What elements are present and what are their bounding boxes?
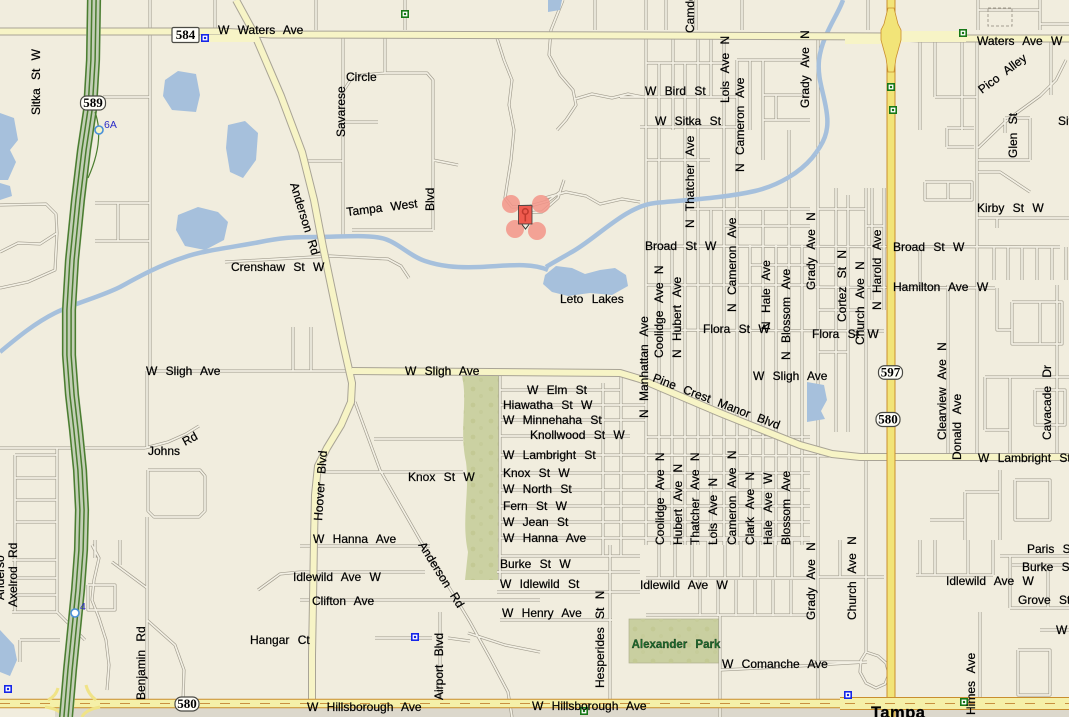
svg-text:Crenshaw St W: Crenshaw St W <box>231 260 325 274</box>
svg-text:N Cameron Ave: N Cameron Ave <box>725 217 739 312</box>
svg-text:Grady Ave N: Grady Ave N <box>798 30 812 108</box>
svg-text:Leto Lakes: Leto Lakes <box>560 292 624 306</box>
svg-text:Cameron Ave N: Cameron Ave N <box>725 451 739 546</box>
svg-text:597: 597 <box>881 365 901 380</box>
svg-text:W Lambright St: W Lambright St <box>978 451 1069 465</box>
svg-text:W Waters Ave: W Waters Ave <box>218 23 304 37</box>
svg-text:Lois Ave N: Lois Ave N <box>706 478 720 545</box>
svg-text:W Minnehaha St: W Minnehaha St <box>503 413 602 427</box>
svg-text:Idlewild Ave W: Idlewild Ave W <box>640 578 728 592</box>
svg-text:W Idlewild St: W Idlewild St <box>500 577 580 591</box>
svg-text:Anderso: Anderso <box>0 555 7 600</box>
svg-text:Alexander Park: Alexander Park <box>632 639 721 651</box>
svg-text:584: 584 <box>176 27 196 42</box>
svg-text:Savarese: Savarese <box>334 86 348 137</box>
svg-text:Axelrod Rd: Axelrod Rd <box>6 543 20 607</box>
svg-text:Camden: Camden <box>683 0 697 33</box>
svg-text:Grady Ave N: Grady Ave N <box>804 542 818 620</box>
svg-text:W Cr: W Cr <box>1056 623 1069 637</box>
svg-text:Grady Ave N: Grady Ave N <box>804 212 818 290</box>
svg-text:Knox St W: Knox St W <box>503 466 570 480</box>
svg-text:6A: 6A <box>104 119 117 131</box>
svg-text:Grove St: Grove St <box>1018 593 1069 607</box>
svg-text:Glen St: Glen St <box>1006 112 1020 158</box>
svg-text:Blvd: Blvd <box>423 188 437 211</box>
svg-text:Cavacade Dr: Cavacade Dr <box>1040 365 1054 440</box>
svg-text:Kirby St W: Kirby St W <box>977 201 1044 215</box>
svg-text:Cortez St N: Cortez St N <box>835 250 849 322</box>
svg-text:Church Ave N: Church Ave N <box>845 536 859 620</box>
svg-text:Airport Blvd: Airport Blvd <box>432 633 446 700</box>
svg-text:W Sligh Ave: W Sligh Ave <box>405 364 480 378</box>
svg-text:N Hubert Ave: N Hubert Ave <box>670 277 684 358</box>
svg-text:589: 589 <box>83 95 103 110</box>
svg-text:Clark Ave N: Clark Ave N <box>743 472 757 545</box>
svg-text:W Jean St: W Jean St <box>503 515 569 529</box>
svg-text:Church Ave N: Church Ave N <box>853 261 867 345</box>
svg-text:Benjamin Rd: Benjamin Rd <box>134 626 148 700</box>
svg-text:Coolidge Ave N: Coolidge Ave N <box>653 453 667 546</box>
svg-text:W Sligh Ave: W Sligh Ave <box>753 369 828 383</box>
svg-text:580: 580 <box>878 412 898 427</box>
svg-text:Hamilton Ave W: Hamilton Ave W <box>893 280 989 294</box>
svg-text:Tampa: Tampa <box>871 704 926 717</box>
svg-text:Idlewild Ave W: Idlewild Ave W <box>293 570 381 584</box>
svg-text:N Hale Ave: N Hale Ave <box>759 260 773 330</box>
svg-text:Hesperides St N: Hesperides St N <box>593 591 607 688</box>
svg-text:Paris St: Paris St <box>1027 542 1069 556</box>
svg-text:N Harold Ave: N Harold Ave <box>870 229 884 310</box>
svg-text:Broad St W: Broad St W <box>645 239 717 253</box>
svg-text:Coolidge Ave N: Coolidge Ave N <box>652 266 666 359</box>
svg-text:W Elm St: W Elm St <box>527 383 588 397</box>
svg-text:Knollwood St W: Knollwood St W <box>530 428 625 442</box>
svg-text:W Comanche Ave: W Comanche Ave <box>722 657 828 671</box>
svg-text:Hale Ave W: Hale Ave W <box>761 472 775 545</box>
svg-text:Clifton Ave: Clifton Ave <box>312 594 374 608</box>
svg-text:Burke St W: Burke St W <box>500 557 571 571</box>
svg-text:Sitka St W: Sitka St W <box>29 48 43 115</box>
svg-text:Blossom Ave: Blossom Ave <box>779 471 793 545</box>
svg-text:Hiawatha St W: Hiawatha St W <box>503 398 593 412</box>
svg-text:W Sitka St: W Sitka St <box>655 114 722 128</box>
svg-text:W Hanna Ave: W Hanna Ave <box>503 531 586 545</box>
svg-text:W Lambright St: W Lambright St <box>503 448 596 462</box>
svg-text:4: 4 <box>80 601 86 613</box>
svg-text:W Bird St: W Bird St <box>645 84 706 98</box>
svg-text:Knox St W: Knox St W <box>408 470 475 484</box>
svg-text:Sitka: Sitka <box>1058 114 1069 128</box>
svg-text:Circle: Circle <box>346 70 377 84</box>
svg-text:Hangar Ct: Hangar Ct <box>250 633 310 647</box>
svg-text:N Cameron Ave: N Cameron Ave <box>733 77 747 172</box>
svg-text:Idlewild Ave W: Idlewild Ave W <box>946 574 1034 588</box>
svg-text:Lois Ave N: Lois Ave N <box>718 36 732 103</box>
svg-text:Johns: Johns <box>148 444 180 458</box>
svg-text:W Hanna Ave: W Hanna Ave <box>313 532 396 546</box>
svg-text:W Hillsborough Ave: W Hillsborough Ave <box>532 699 647 713</box>
svg-text:Flora St W: Flora St W <box>812 327 879 341</box>
svg-text:W Hillsborough Ave: W Hillsborough Ave <box>307 700 422 714</box>
svg-text:Fern St W: Fern St W <box>503 499 568 513</box>
svg-text:W North St: W North St <box>503 482 572 496</box>
svg-text:N Blossom Ave: N Blossom Ave <box>779 269 793 360</box>
svg-text:580: 580 <box>177 696 197 711</box>
svg-text:Clearview Ave N: Clearview Ave N <box>935 342 949 440</box>
svg-text:Hubert Ave N: Hubert Ave N <box>671 464 685 545</box>
svg-text:N Manhattan Ave: N Manhattan Ave <box>637 316 651 418</box>
svg-text:Donald Ave: Donald Ave <box>950 394 964 460</box>
svg-text:Burke St: Burke St <box>1022 560 1069 574</box>
svg-text:N Thatcher Ave: N Thatcher Ave <box>683 135 697 228</box>
svg-text:Himes Ave: Himes Ave <box>964 653 978 715</box>
svg-text:Waters Ave W: Waters Ave W <box>977 34 1063 48</box>
svg-text:Thatcher Ave N: Thatcher Ave N <box>688 453 702 546</box>
svg-text:W Henry Ave: W Henry Ave <box>502 606 582 620</box>
svg-text:Broad St W: Broad St W <box>893 240 965 254</box>
svg-text:W Sligh Ave: W Sligh Ave <box>146 364 221 378</box>
